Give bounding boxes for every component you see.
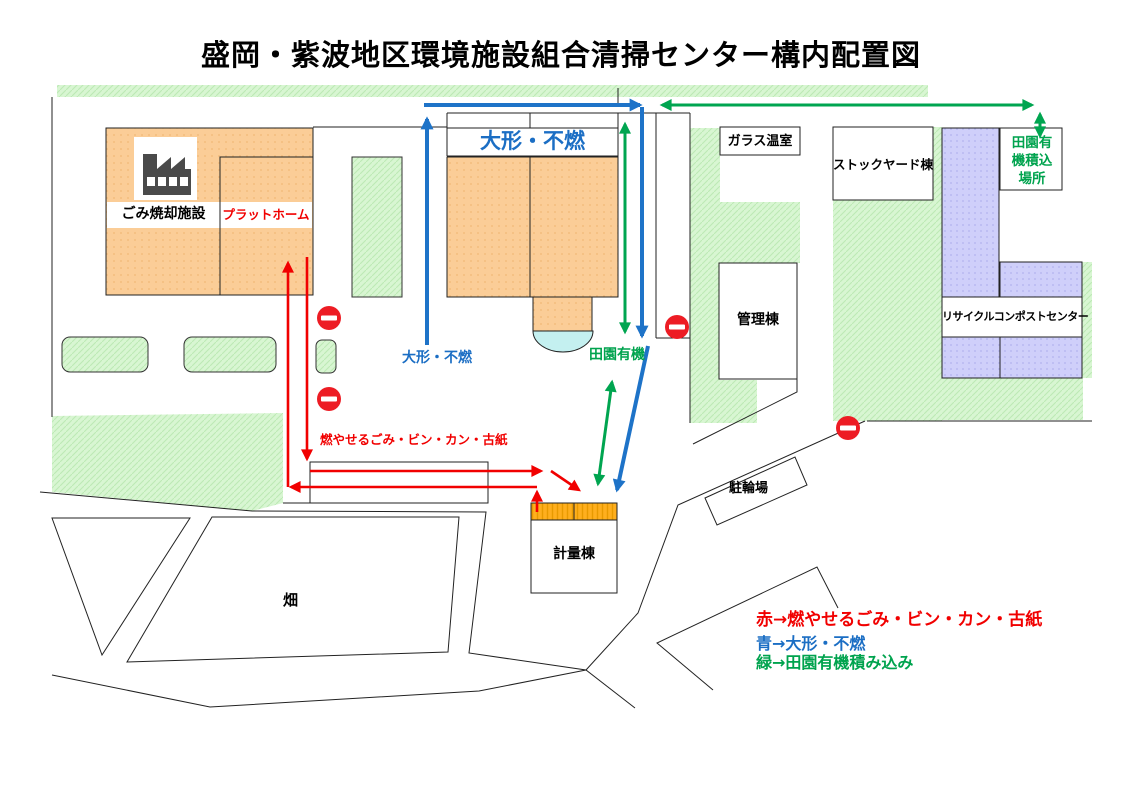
stockyard-label: ストックヤード棟: [833, 157, 933, 172]
green-island: [184, 337, 276, 372]
green-block: [352, 157, 402, 297]
green-block: [942, 378, 1083, 420]
route-label-oversized: 大形・不燃: [402, 350, 472, 367]
site-map-page: 盛岡・紫波地区環境施設組合清掃センター構内配置図 ごみ焼却施設 プラットホーム …: [0, 0, 1122, 793]
route-blue-segment: [617, 346, 648, 490]
legend-green: 緑→田園有機積み込み: [756, 653, 913, 672]
green-block: [720, 202, 800, 263]
legend-blue: 青→大形・不燃: [756, 634, 865, 653]
platform-label: プラットホーム: [219, 207, 313, 222]
route-label-burnable: 燃やせるごみ・ビン・カン・古紙: [320, 432, 508, 447]
green-block: [833, 200, 942, 421]
recycle-compost-label: リサイクルコンポストセンター: [942, 310, 1082, 323]
road-line: [283, 462, 488, 503]
building-annex: [533, 297, 592, 331]
green-island: [316, 340, 336, 373]
route-green-segment: [598, 382, 612, 484]
green-strip: [933, 127, 942, 200]
recycle-building-wing: [942, 128, 999, 297]
incinerator-label: ごみ焼却施設: [107, 206, 220, 223]
green-top-band: [57, 85, 928, 97]
green-island: [62, 337, 148, 372]
oversized-building-sign: 大形・不燃: [447, 129, 618, 154]
bicycle-parking-label: 駐輪場: [729, 481, 768, 497]
recycle-building-wing: [1000, 262, 1082, 297]
page-title: 盛岡・紫波地区環境施設組合清掃センター構内配置図: [0, 38, 1122, 73]
no-entry-icon: [836, 416, 860, 440]
tank-dome: [533, 331, 593, 352]
weighbridge-label: 計量棟: [531, 546, 617, 563]
green-column: [690, 128, 720, 423]
road-line: [52, 670, 586, 707]
site-map-svg: [0, 0, 1122, 793]
denen-loading-label: 田園有機積込場所: [1008, 134, 1056, 189]
route-label-denen: 田園有機: [589, 347, 645, 364]
route-red-segment: [551, 471, 579, 490]
recycle-building-wing: [942, 337, 1082, 378]
legend-red: 赤→燃やせるごみ・ビン・カン・古紙: [756, 610, 1042, 630]
no-entry-icon: [317, 306, 341, 330]
no-entry-icon: [665, 315, 689, 339]
oversized-waste-building: [447, 157, 618, 297]
admin-label: 管理棟: [719, 312, 797, 329]
greenhouse-label: ガラス温室: [720, 134, 800, 150]
road-line: [586, 421, 865, 670]
no-entry-icon: [317, 387, 341, 411]
field-label: 畑: [283, 591, 298, 609]
